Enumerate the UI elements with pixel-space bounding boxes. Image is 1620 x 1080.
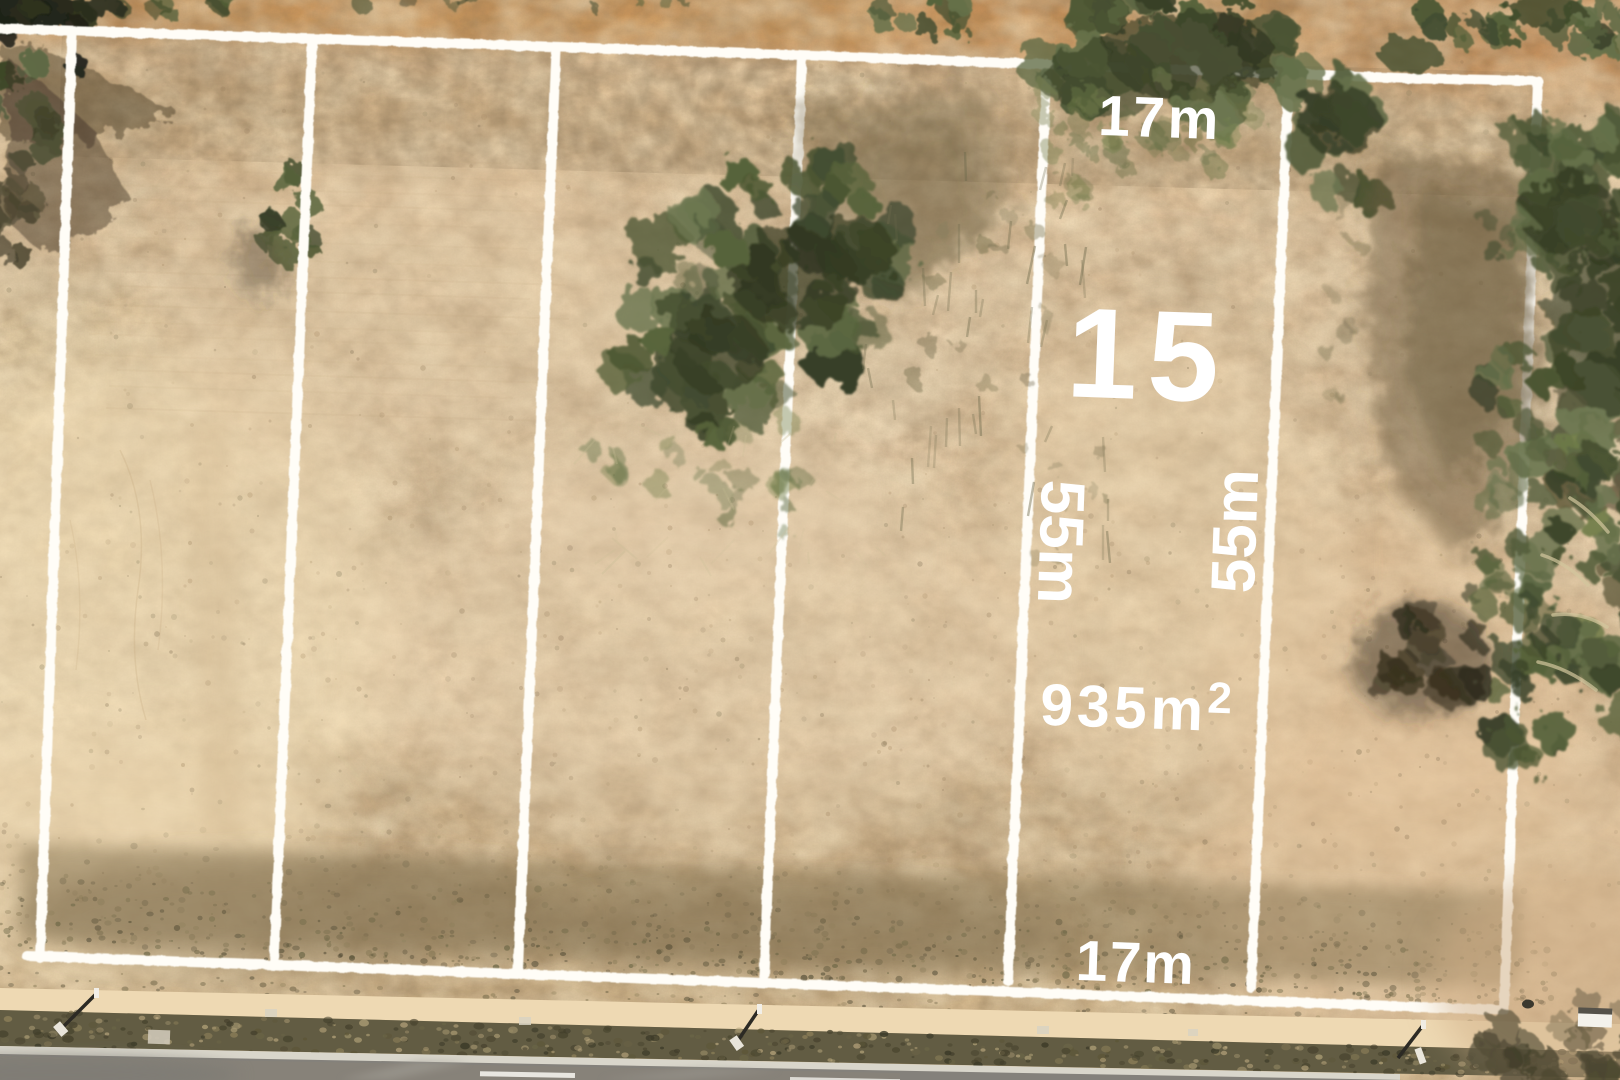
svg-text:15: 15 [1064,281,1231,430]
svg-text:935m2: 935m2 [1039,668,1233,745]
svg-text:17m: 17m [1097,84,1222,152]
svg-text:17m: 17m [1075,929,1197,997]
svg-text:55m: 55m [1199,468,1272,594]
svg-text:55m: 55m [1024,479,1097,605]
